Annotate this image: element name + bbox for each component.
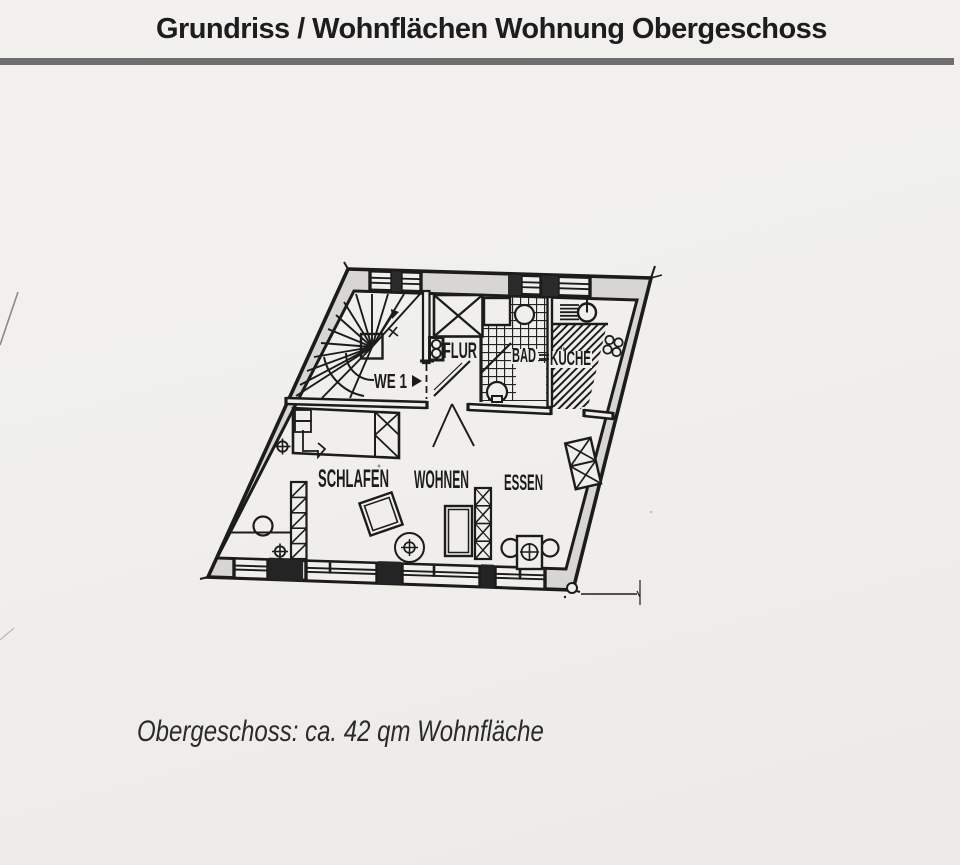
svg-text:KÜCHE: KÜCHE [550, 347, 591, 370]
svg-text:FLUR: FLUR [443, 338, 477, 363]
svg-text:SCHLAFEN: SCHLAFEN [318, 465, 389, 493]
svg-text:WE 1: WE 1 [374, 371, 407, 393]
svg-text:ESSEN: ESSEN [504, 470, 543, 495]
svg-text:BAD: BAD [512, 345, 536, 367]
svg-text:WOHNEN: WOHNEN [414, 466, 469, 494]
